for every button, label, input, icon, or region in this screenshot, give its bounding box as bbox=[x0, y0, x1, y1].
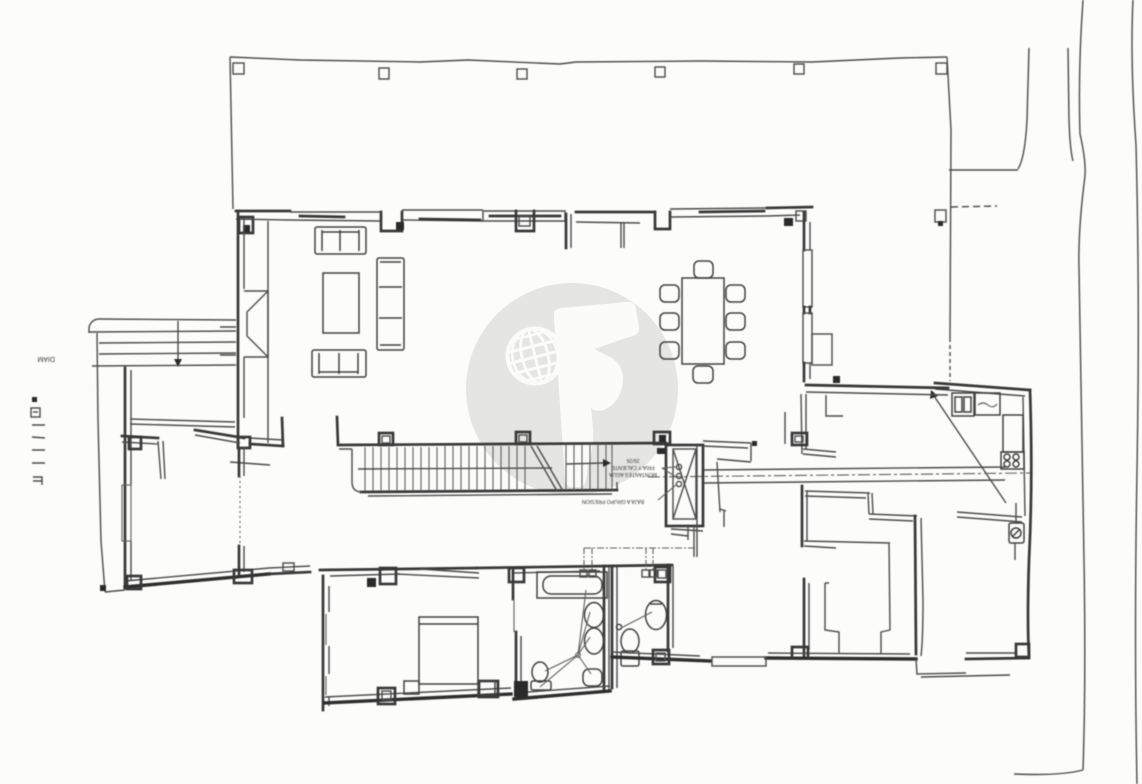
svg-text:FRIA Y CALIENTE: FRIA Y CALIENTE bbox=[611, 464, 655, 470]
svg-text:MONTANTES AGUA: MONTANTES AGUA bbox=[608, 471, 657, 477]
svg-text:DIAM: DIAM bbox=[37, 355, 55, 362]
svg-text:26/26: 26/26 bbox=[626, 457, 639, 463]
svg-text:BAJA A GRUPO PRESION: BAJA A GRUPO PRESION bbox=[582, 498, 645, 504]
